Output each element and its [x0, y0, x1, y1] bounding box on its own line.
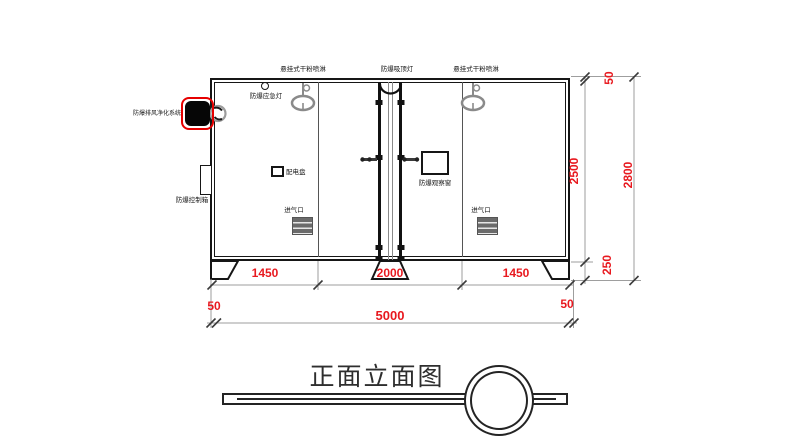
purification-system-label: 防爆排风净化系统	[133, 111, 179, 118]
sprinkler-right-icon	[462, 83, 484, 110]
sprinkler-left-label: 悬挂式干粉喷淋	[280, 66, 326, 73]
dim-body-height: 2500	[568, 156, 580, 186]
sprinkler-left-icon	[292, 83, 314, 110]
power-panel	[271, 166, 284, 177]
sprinkler-right-label: 悬挂式干粉喷淋	[453, 66, 499, 73]
dimension-lines	[207, 77, 641, 329]
dim-roof-offset: 50	[603, 67, 615, 89]
air-inlet-vent-left	[292, 217, 313, 235]
drawing-title: 正面立面图	[277, 357, 477, 393]
dim-base-height: 250	[601, 250, 613, 280]
power-panel-label: 配电盘	[286, 169, 306, 176]
observation-window-label: 防爆观察窗	[419, 180, 452, 187]
observation-window	[421, 151, 449, 175]
dim-total-width: 5000	[365, 309, 415, 322]
title-circle-inner	[470, 371, 528, 430]
control-box-label: 防爆控制箱	[176, 197, 209, 204]
ceiling-light-arc	[380, 84, 401, 94]
dim-seg-center: 2000	[365, 267, 415, 279]
air-inlet-right-label: 进气口	[471, 207, 491, 214]
foot-right	[542, 261, 569, 279]
door-handles	[360, 157, 419, 161]
emergency-light-label: 防爆应急灯	[250, 93, 283, 100]
door-hinges	[376, 100, 405, 261]
dim-seg-left: 1450	[240, 267, 290, 279]
dim-total-height: 2800	[622, 160, 634, 190]
air-inlet-vent-right	[477, 217, 498, 235]
elevation-drawing-canvas: 悬挂式干粉喷淋 防爆吸顶灯 悬挂式干粉喷淋 防爆应急灯 防爆排风净化系统 防爆控…	[0, 0, 800, 445]
dim-offset-right: 50	[554, 298, 580, 310]
ceiling-light-label: 防爆吸顶灯	[381, 66, 414, 73]
dim-offset-left: 50	[201, 300, 227, 312]
emergency-light-icon	[261, 82, 269, 90]
foot-left	[211, 261, 238, 279]
control-box	[200, 165, 212, 195]
dim-seg-right: 1450	[491, 267, 541, 279]
purification-unit-body	[185, 101, 210, 126]
air-inlet-left-label: 进气口	[284, 207, 304, 214]
